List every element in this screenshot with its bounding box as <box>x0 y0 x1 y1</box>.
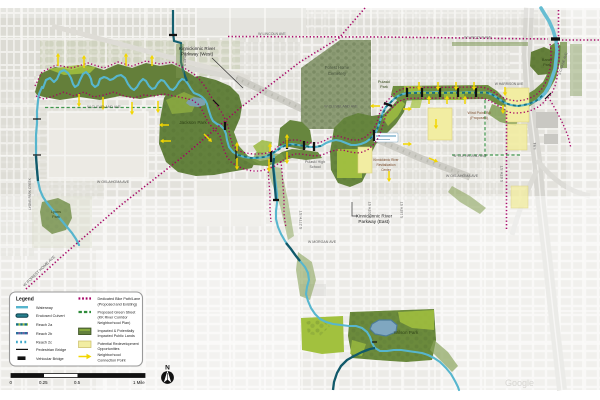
svg-text:Legend: Legend <box>16 297 34 303</box>
svg-text:Park: Park <box>543 63 551 67</box>
svg-text:Cemetery: Cemetery <box>328 71 347 76</box>
svg-text:Parkway (East): Parkway (East) <box>358 219 390 224</box>
svg-text:(Proposed): (Proposed) <box>470 116 488 120</box>
svg-text:W OKLAHOMA AVE: W OKLAHOMA AVE <box>446 174 479 178</box>
svg-text:Reach 2a: Reach 2a <box>36 323 53 327</box>
svg-text:Reach 2b: Reach 2b <box>36 332 52 336</box>
svg-text:Lyons: Lyons <box>51 210 61 214</box>
svg-text:Connection Point: Connection Point <box>98 358 126 362</box>
svg-text:W HARRISON AVE: W HARRISON AVE <box>495 82 524 86</box>
svg-text:W LINCOLN AVE: W LINCOLN AVE <box>258 32 286 36</box>
svg-text:Kinnickinnic River: Kinnickinnic River <box>373 158 399 162</box>
svg-text:N: N <box>165 365 170 372</box>
svg-text:Impacted Public Lands: Impacted Public Lands <box>98 334 135 338</box>
svg-text:W CLEVELAND AVE: W CLEVELAND AVE <box>324 105 358 109</box>
svg-text:Neighborhood Plan): Neighborhood Plan) <box>98 321 131 325</box>
svg-text:I-94: I-94 <box>532 142 537 150</box>
svg-text:Forest Home: Forest Home <box>325 65 350 70</box>
svg-text:S 43RD ST: S 43RD ST <box>183 50 187 66</box>
svg-text:Dedicated Bike Path/Lane: Dedicated Bike Path/Lane <box>98 297 141 301</box>
svg-text:1 Mile: 1 Mile <box>133 380 145 385</box>
svg-text:Jackson Park: Jackson Park <box>179 120 207 125</box>
svg-text:Kinnickinnic River: Kinnickinnic River <box>356 214 393 219</box>
svg-text:Neighborhood: Neighborhood <box>98 353 121 357</box>
svg-text:Potential Redevelopment: Potential Redevelopment <box>98 342 139 346</box>
svg-text:S 27TH ST: S 27TH ST <box>299 210 303 229</box>
svg-text:Google: Google <box>505 378 534 388</box>
svg-text:Park: Park <box>52 215 60 219</box>
svg-text:(KK River Corridor: (KK River Corridor <box>98 316 129 320</box>
svg-text:Opportunities: Opportunities <box>98 347 120 351</box>
svg-text:Impacted & Potentially: Impacted & Potentially <box>98 329 135 333</box>
svg-text:S 16TH ST: S 16TH ST <box>400 202 404 219</box>
svg-text:LYONS PARK CREEK: LYONS PARK CREEK <box>28 177 32 210</box>
svg-text:W CLEVELAND AVE: W CLEVELAND AVE <box>453 154 487 158</box>
svg-text:(Proposed and Existing): (Proposed and Existing) <box>98 302 137 306</box>
svg-text:Enclosed Culvert: Enclosed Culvert <box>36 314 66 318</box>
svg-text:Pulaski: Pulaski <box>378 80 390 84</box>
svg-text:Waterway: Waterway <box>36 306 53 310</box>
svg-text:Wilson Park: Wilson Park <box>394 330 419 335</box>
svg-text:W CLEVELAND AVE: W CLEVELAND AVE <box>87 105 121 109</box>
svg-text:W MORGAN AVE: W MORGAN AVE <box>308 240 337 244</box>
svg-text:0.25: 0.25 <box>39 380 48 385</box>
svg-text:Center: Center <box>381 168 392 172</box>
svg-text:W LINCOLN AVE: W LINCOLN AVE <box>464 36 492 40</box>
svg-text:S 6TH ST: S 6TH ST <box>500 165 504 182</box>
svg-text:Reach 2c: Reach 2c <box>36 341 52 345</box>
svg-text:Pedestrian Bridge: Pedestrian Bridge <box>36 348 66 352</box>
svg-text:Wind Point Rd: Wind Point Rd <box>468 111 491 115</box>
svg-text:School: School <box>310 165 321 169</box>
svg-text:S 20TH ST: S 20TH ST <box>368 202 372 219</box>
svg-text:Vehicular Bridge: Vehicular Bridge <box>36 357 64 361</box>
svg-text:0.5: 0.5 <box>74 380 81 385</box>
svg-text:Revitalization: Revitalization <box>377 163 396 167</box>
svg-text:W OKLAHOMA AVE: W OKLAHOMA AVE <box>97 180 130 184</box>
svg-text:Pulaski High: Pulaski High <box>305 160 325 164</box>
svg-text:Proposed Green Street: Proposed Green Street <box>98 310 136 314</box>
svg-text:Baran: Baran <box>542 58 552 62</box>
svg-text:Park: Park <box>380 85 388 89</box>
